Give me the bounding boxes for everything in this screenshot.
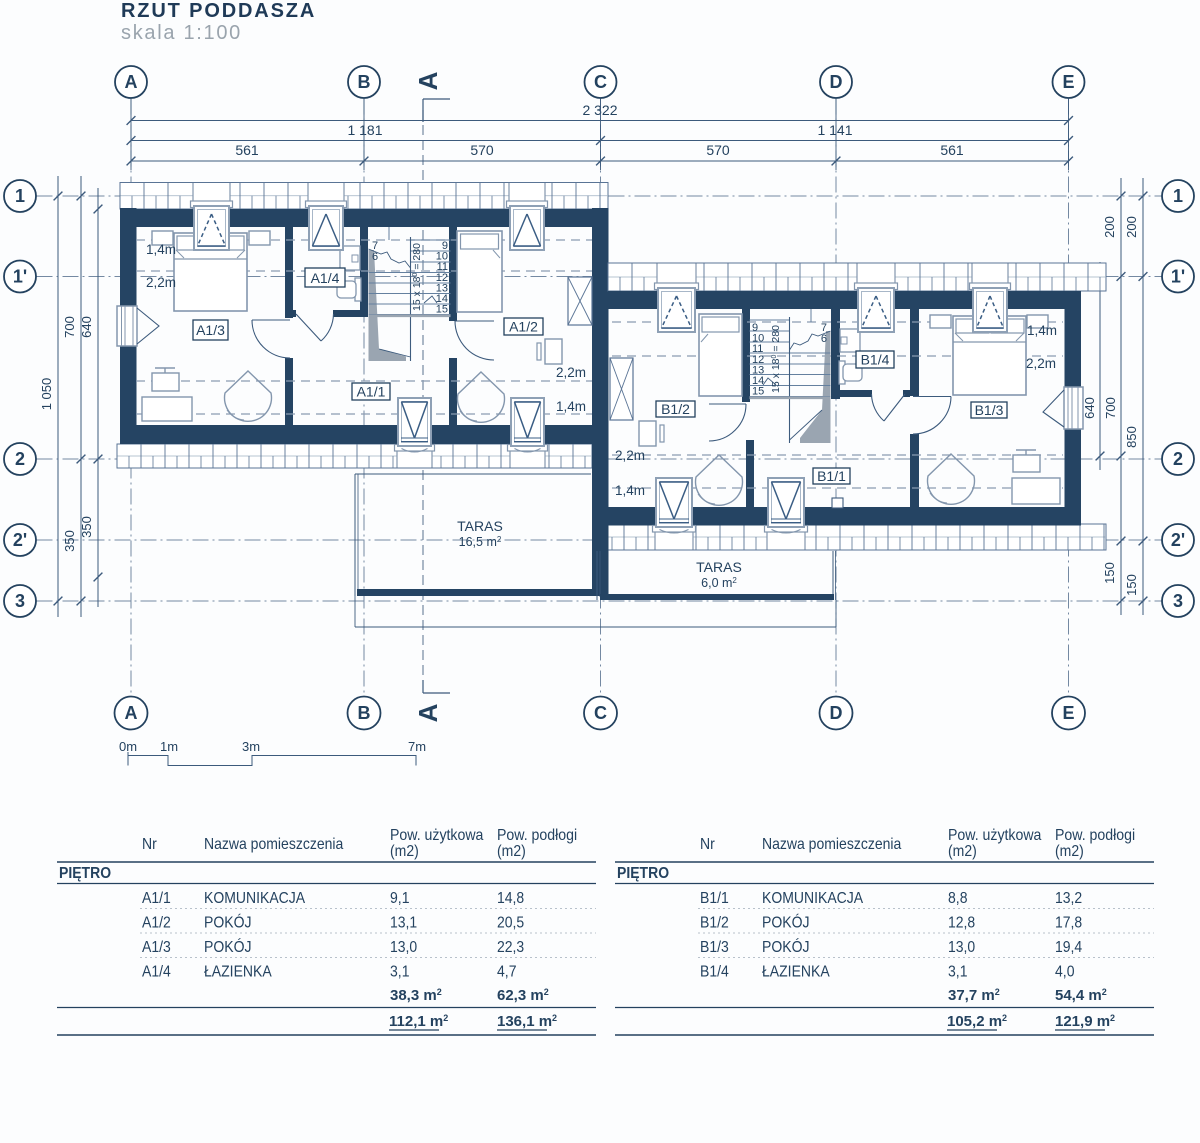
svg-text:A1/4: A1/4 [142,964,171,981]
svg-text:54,4 m2: 54,4 m2 [1055,987,1107,1004]
svg-text:561: 561 [940,142,964,158]
svg-text:3,1: 3,1 [390,964,410,981]
svg-text:PIĘTRO: PIĘTRO [617,865,669,882]
svg-text:B1/1: B1/1 [700,890,729,907]
svg-text:15: 15 [436,304,448,316]
svg-text:350: 350 [79,516,94,538]
svg-text:RZUT PODDASZA: RZUT PODDASZA [121,0,316,22]
svg-text:Pow. podłogi: Pow. podłogi [497,827,577,844]
svg-text:850: 850 [1124,426,1139,448]
svg-text:B1/2: B1/2 [661,401,690,417]
svg-text:15: 15 [752,386,764,398]
svg-text:13,1: 13,1 [390,915,417,932]
svg-text:640: 640 [1082,397,1097,419]
svg-text:KOMUNIKACJA: KOMUNIKACJA [204,890,305,907]
svg-text:3m: 3m [242,739,260,754]
svg-text:9,1: 9,1 [390,890,410,907]
svg-text:3: 3 [15,591,25,611]
svg-text:Pow. podłogi: Pow. podłogi [1055,827,1135,844]
svg-text:13,0: 13,0 [948,939,975,956]
svg-text:Pow. użytkowa: Pow. użytkowa [948,827,1041,844]
svg-text:A1/1: A1/1 [357,384,386,400]
svg-text:700: 700 [62,316,77,338]
svg-text:0m: 0m [119,739,137,754]
svg-text:150: 150 [1102,562,1117,584]
svg-text:62,3 m2: 62,3 m2 [497,987,549,1004]
svg-text:Nazwa pomieszczenia: Nazwa pomieszczenia [204,836,343,853]
svg-text:17,8: 17,8 [1055,915,1082,932]
svg-text:POKÓJ: POKÓJ [204,913,252,932]
svg-text:Nr: Nr [142,836,157,853]
svg-text:1': 1' [1171,267,1185,287]
svg-text:6,0 m2: 6,0 m2 [701,576,737,590]
svg-text:2': 2' [13,530,27,550]
svg-text:150: 150 [1124,574,1139,596]
svg-text:B1/4: B1/4 [700,964,729,981]
svg-text:121,9 m2: 121,9 m2 [1055,1013,1115,1030]
svg-text:POKÓJ: POKÓJ [762,937,810,956]
svg-text:561: 561 [235,142,259,158]
svg-text:C: C [594,72,607,92]
svg-text:350: 350 [62,530,77,552]
svg-text:ŁAZIENKA: ŁAZIENKA [204,964,272,981]
svg-text:105,2 m2: 105,2 m2 [947,1013,1007,1030]
svg-text:C: C [594,703,607,723]
svg-text:A1/4: A1/4 [311,270,340,286]
svg-text:A: A [125,703,138,723]
svg-text:E: E [1062,703,1074,723]
svg-text:6: 6 [372,251,378,263]
svg-text:8,8: 8,8 [948,890,968,907]
svg-text:15 x 180 = 280: 15 x 180 = 280 [411,243,423,311]
svg-text:B1/3: B1/3 [975,402,1004,418]
svg-text:A1/2: A1/2 [509,319,538,335]
svg-text:ŁAZIENKA: ŁAZIENKA [762,964,830,981]
svg-text:4,7: 4,7 [497,964,517,981]
svg-text:B1/3: B1/3 [700,939,729,956]
svg-text:15 x 180 = 280: 15 x 180 = 280 [770,325,782,393]
svg-text:PIĘTRO: PIĘTRO [59,865,111,882]
svg-text:200: 200 [1124,216,1139,238]
svg-text:D: D [830,703,843,723]
svg-text:2,2m: 2,2m [615,448,645,463]
svg-text:13,2: 13,2 [1055,890,1082,907]
svg-text:A1/3: A1/3 [196,322,225,338]
svg-text:1,4m: 1,4m [556,399,586,414]
svg-text:136,1 m2: 136,1 m2 [497,1013,557,1030]
svg-text:1m: 1m [160,739,178,754]
svg-text:2,2m: 2,2m [146,275,176,290]
svg-text:200: 200 [1102,216,1117,238]
svg-text:Nazwa pomieszczenia: Nazwa pomieszczenia [762,836,901,853]
svg-text:112,1 m2: 112,1 m2 [389,1013,448,1030]
svg-text:POKÓJ: POKÓJ [204,937,252,956]
svg-text:2,2m: 2,2m [1026,356,1056,371]
svg-text:20,5: 20,5 [497,915,524,932]
svg-text:(m2): (m2) [390,843,419,860]
svg-text:570: 570 [470,142,494,158]
svg-text:Nr: Nr [700,836,715,853]
svg-text:13,0: 13,0 [390,939,417,956]
svg-text:B: B [358,72,371,92]
svg-text:D: D [830,72,843,92]
svg-text:1 141: 1 141 [817,122,852,138]
svg-text:1,4m: 1,4m [615,483,645,498]
svg-text:2: 2 [15,449,25,469]
svg-text:TARAS: TARAS [457,518,503,534]
svg-text:B: B [358,703,371,723]
svg-text:1,4m: 1,4m [1027,323,1057,338]
svg-text:A1/3: A1/3 [142,939,171,956]
svg-text:1 181: 1 181 [347,122,382,138]
svg-text:A: A [413,71,443,90]
svg-text:22,3: 22,3 [497,939,524,956]
svg-text:700: 700 [1103,397,1118,419]
svg-text:37,7 m2: 37,7 m2 [948,987,1000,1004]
svg-text:skala 1:100: skala 1:100 [121,22,242,44]
svg-text:6: 6 [821,333,827,345]
svg-text:A: A [125,72,138,92]
svg-text:A1/1: A1/1 [142,890,171,907]
svg-text:14,8: 14,8 [497,890,524,907]
svg-text:4,0: 4,0 [1055,964,1075,981]
svg-text:2': 2' [1171,530,1185,550]
svg-text:1 050: 1 050 [39,378,54,411]
svg-text:A1/2: A1/2 [142,915,171,932]
svg-text:640: 640 [79,316,94,338]
svg-text:2,2m: 2,2m [556,365,586,380]
svg-text:B1/2: B1/2 [700,915,729,932]
svg-text:7m: 7m [408,739,426,754]
svg-text:38,3 m2: 38,3 m2 [390,987,442,1004]
svg-text:(m2): (m2) [948,843,977,860]
svg-text:B1/4: B1/4 [861,352,890,368]
svg-text:Pow. użytkowa: Pow. użytkowa [390,827,483,844]
svg-text:3: 3 [1173,591,1183,611]
svg-text:2: 2 [1173,449,1183,469]
svg-text:3,1: 3,1 [948,964,968,981]
svg-text:16,5 m2: 16,5 m2 [459,535,502,549]
svg-text:1: 1 [15,186,25,206]
svg-text:1: 1 [1173,186,1183,206]
svg-text:(m2): (m2) [497,843,526,860]
svg-text:1,4m: 1,4m [146,242,176,257]
svg-text:TARAS: TARAS [696,559,742,575]
svg-text:A: A [413,703,443,722]
svg-text:570: 570 [706,142,730,158]
svg-text:KOMUNIKACJA: KOMUNIKACJA [762,890,863,907]
svg-text:POKÓJ: POKÓJ [762,913,810,932]
svg-text:(m2): (m2) [1055,843,1084,860]
svg-text:19,4: 19,4 [1055,939,1082,956]
svg-text:E: E [1062,72,1074,92]
svg-text:B1/1: B1/1 [817,468,846,484]
svg-text:1': 1' [13,267,27,287]
svg-text:12,8: 12,8 [948,915,975,932]
